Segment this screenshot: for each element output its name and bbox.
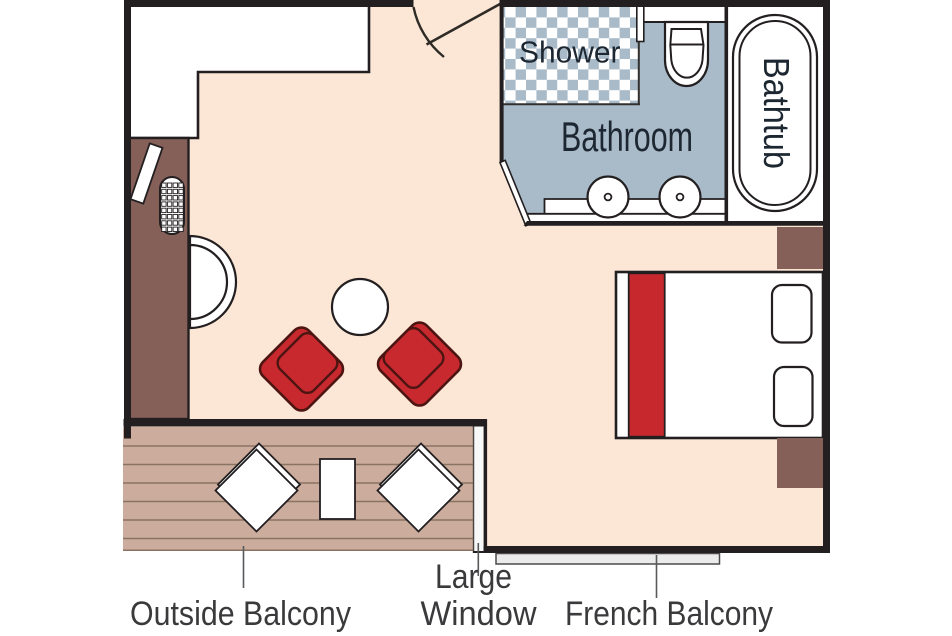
svg-text:Outside Balcony: Outside Balcony xyxy=(130,595,351,633)
svg-text:Bathtub: Bathtub xyxy=(756,57,797,169)
svg-text:Shower: Shower xyxy=(519,35,621,70)
svg-text:Bathroom: Bathroom xyxy=(561,113,693,160)
svg-text:Large: Large xyxy=(435,558,512,596)
svg-text:Window: Window xyxy=(421,595,537,633)
svg-text:French Balcony: French Balcony xyxy=(565,595,773,633)
